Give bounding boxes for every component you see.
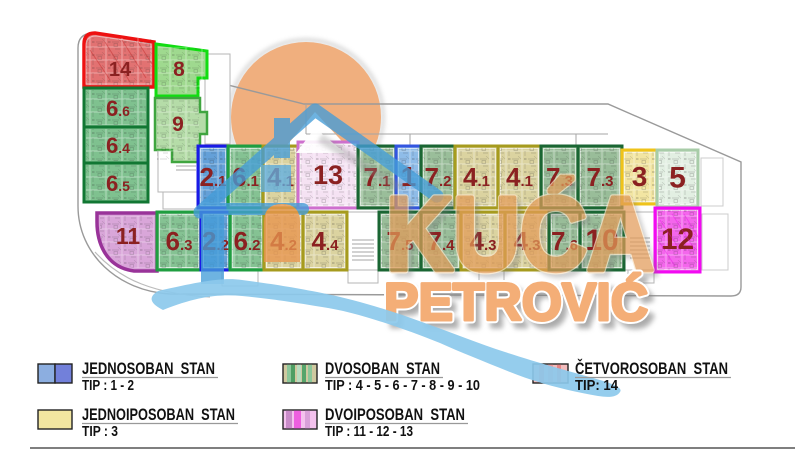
svg-text:5: 5 [669,162,686,195]
svg-text:DVOSOBAN STAN: DVOSOBAN STAN [325,359,440,378]
svg-text:ČETVOROSOBAN STAN: ČETVOROSOBAN STAN [575,359,728,378]
svg-text:JEDNOIPOSOBAN STAN: JEDNOIPOSOBAN STAN [82,405,235,424]
svg-text:DVOIPOSOBAN STAN: DVOIPOSOBAN STAN [325,405,465,424]
svg-text:JEDNOSOBAN STAN: JEDNOSOBAN STAN [82,359,215,378]
svg-text:TIP : 4 - 5 - 6 - 7 - 8 - 9 -: TIP : 4 - 5 - 6 - 7 - 8 - 9 - 10 [325,377,480,394]
svg-text:11: 11 [116,223,141,249]
svg-text:8: 8 [173,58,185,81]
svg-text:13: 13 [313,160,343,190]
svg-text:TIP : 1 - 2: TIP : 1 - 2 [82,377,134,394]
svg-text:TIP : 11 - 12 - 13: TIP : 11 - 12 - 13 [325,423,413,440]
svg-text:TIP : 3: TIP : 3 [82,423,118,440]
svg-text:14: 14 [109,59,132,81]
svg-text:9: 9 [172,113,184,136]
svg-text:TIP: 14: TIP: 14 [575,377,619,394]
